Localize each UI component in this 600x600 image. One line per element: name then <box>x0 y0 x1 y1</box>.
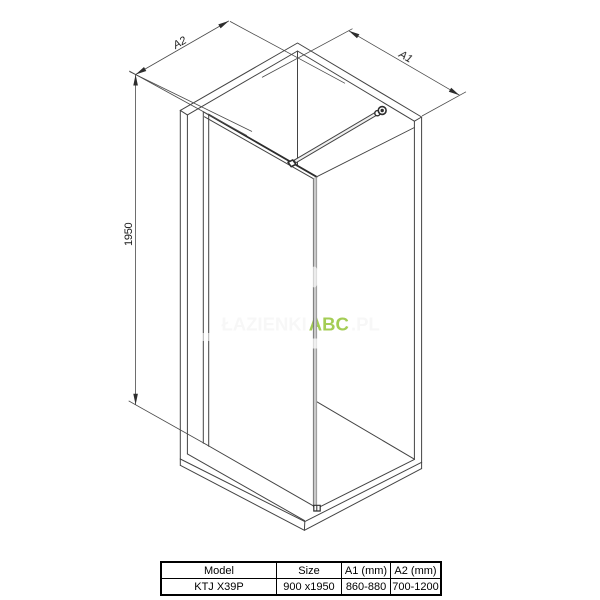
svg-text:1950: 1950 <box>123 222 135 245</box>
svg-text:.PL: .PL <box>351 314 380 335</box>
svg-text:A1: A1 <box>396 48 415 66</box>
svg-text:A2: A2 <box>170 35 189 53</box>
svg-text:ŁAZIENKI: ŁAZIENKI <box>222 314 307 335</box>
